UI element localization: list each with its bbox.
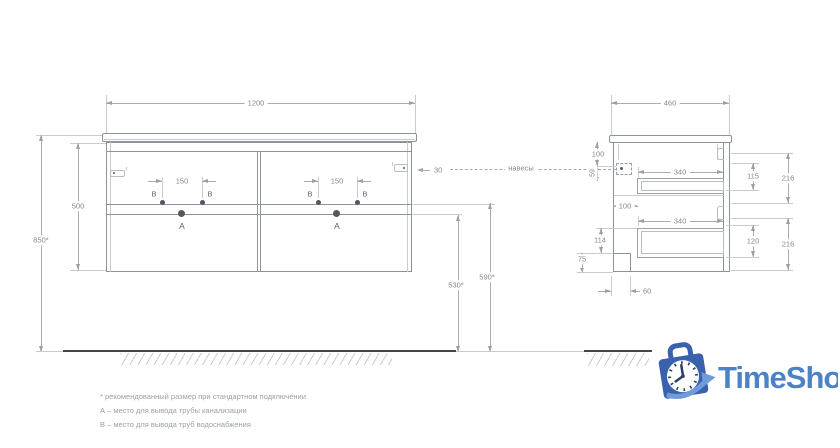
floor-line-thin: [456, 351, 584, 352]
arrow-icon: [409, 101, 415, 105]
arrow-icon: [456, 215, 460, 221]
drawer-box-top-inner: [641, 181, 724, 191]
drain-point: [333, 210, 340, 217]
drawer-box-bottom-inner: [641, 231, 724, 254]
extension-line: [731, 203, 793, 204]
dim-label-supply-span: 150: [173, 176, 192, 186]
dim-line-edge-offset: [421, 170, 430, 171]
dim-label-depth: 460: [661, 98, 680, 108]
extension-line: [731, 270, 793, 271]
supply-point: [316, 200, 321, 205]
arrow-icon: [717, 219, 723, 223]
footnote-b: В – место для вывода труб водоснабжения: [100, 418, 306, 432]
drawer-divider-line: [106, 214, 412, 215]
arrow-icon: [156, 179, 162, 183]
timeshop-logo: TimeShop: [648, 336, 838, 400]
point-label-a: A: [334, 222, 340, 231]
dim-label-drawer-depth: 340: [671, 216, 690, 226]
arrow-icon: [751, 184, 755, 190]
arrow-icon: [312, 179, 318, 183]
dim-label-notch-height: 75: [575, 254, 589, 264]
point-label-b: B: [307, 190, 312, 198]
extension-line: [415, 95, 416, 135]
arrow-icon: [786, 197, 790, 203]
hanger-rail-line: [618, 144, 619, 160]
bracket-hook-line: [126, 167, 127, 171]
arrow-icon: [599, 228, 603, 234]
arrow-icon: [76, 264, 80, 270]
countertop-front: [102, 133, 417, 142]
arrow-icon: [76, 143, 80, 149]
center-divider-line: [257, 151, 258, 272]
arrow-icon: [357, 179, 363, 183]
arrow-icon: [605, 289, 611, 293]
arrow-icon: [786, 264, 790, 270]
dim-label-edge-offset: 30: [432, 165, 444, 175]
extension-line: [162, 177, 163, 198]
footnotes: * рекомендованный размер при стандартном…: [100, 390, 306, 432]
dim-label-hanger-gap: 59: [589, 166, 598, 180]
bracket-dot: [403, 167, 405, 169]
arrow-icon: [39, 135, 43, 141]
arrow-icon: [751, 225, 755, 231]
shelf-line: [614, 195, 724, 196]
arrow-icon: [786, 218, 790, 224]
dim-label-height: 500: [69, 201, 88, 211]
arrow-icon: [751, 163, 755, 169]
dim-label-drawer-inner-bottom: 120: [744, 236, 763, 246]
top-rail-line: [106, 151, 412, 152]
logo-text: TimeShop: [718, 360, 838, 395]
dim-label-front-height-top: 216: [779, 173, 798, 183]
point-label-a: A: [179, 222, 185, 231]
drawer-divider-line: [106, 204, 412, 205]
technical-drawing-canvas: 1200 500 850* 590* 530* 150 150 30 B B B…: [0, 0, 840, 448]
supply-point: [200, 200, 205, 205]
supply-point: [355, 200, 360, 205]
bracket-icon: [394, 164, 408, 172]
arrow-icon: [611, 101, 617, 105]
center-divider-line: [260, 151, 261, 272]
hanger-dot: [620, 167, 623, 170]
notch-line: [613, 253, 630, 254]
dim-label-supply-span: 150: [328, 176, 347, 186]
cabinet-body-front: [106, 142, 412, 272]
extension-line: [731, 218, 793, 219]
bracket-hook-line: [392, 162, 393, 166]
side-panel-line: [407, 142, 408, 272]
extension-line: [726, 190, 759, 191]
dim-line-notch-depth: [636, 291, 640, 292]
dim-label-bottom-offset: 114: [591, 235, 609, 245]
arrow-icon: [751, 251, 755, 257]
shopping-bag-clock-icon: [656, 341, 717, 400]
floor-hatch: [120, 353, 392, 365]
arrow-icon: [202, 179, 208, 183]
arrow-icon: [723, 101, 729, 105]
point-label-b: B: [151, 190, 156, 198]
extension-line: [70, 270, 106, 271]
arrow-icon: [488, 203, 492, 209]
floor-hatch: [587, 353, 649, 366]
dim-label-back-clearance: 100: [616, 201, 635, 211]
arrow-icon: [786, 153, 790, 159]
floor-line: [584, 350, 652, 352]
bracket-dot: [113, 172, 115, 174]
point-label-b: B: [362, 190, 367, 198]
extension-line: [577, 272, 613, 273]
countertop-edge-line: [104, 139, 415, 140]
extension-line: [611, 276, 612, 296]
dim-label-drawer-inner-top: 115: [744, 171, 762, 181]
dim-label-drawer-depth: 340: [671, 167, 690, 177]
drain-point: [178, 210, 185, 217]
footnote-a: А – место для вывода трубы канализации: [100, 404, 306, 418]
extension-line: [36, 135, 102, 136]
dim-label-mount-height: 850*: [30, 235, 51, 245]
arrow-icon: [595, 142, 599, 148]
extension-line: [630, 276, 631, 296]
arrow-icon: [106, 101, 112, 105]
arrow-icon: [638, 170, 644, 174]
dim-label-front-height-bottom: 216: [779, 239, 798, 249]
notch-line: [630, 253, 631, 272]
point-label-b: B: [207, 190, 212, 198]
extension-line: [731, 153, 793, 154]
extension-line: [731, 163, 759, 164]
extension-line: [412, 214, 462, 215]
hanger-bracket: [616, 163, 632, 175]
dim-label-supply-height: 590*: [476, 272, 497, 282]
extension-line: [729, 95, 730, 135]
extension-line: [412, 204, 495, 205]
dim-label-width: 1200: [245, 98, 268, 108]
side-panel-line: [110, 142, 111, 272]
dim-label-drain-height: 530*: [445, 280, 466, 290]
arrow-icon: [638, 219, 644, 223]
dim-label-hanger-top: 100: [589, 149, 608, 159]
footnote-asterisk: * рекомендованный размер при стандартном…: [100, 390, 306, 404]
handle-notch: [717, 148, 724, 160]
extension-line: [318, 177, 319, 198]
floor-line: [63, 350, 456, 352]
dim-label-notch-depth: 60: [641, 286, 653, 296]
hangers-label: навесы: [505, 163, 537, 173]
supply-point: [160, 200, 165, 205]
arrow-icon: [717, 170, 723, 174]
extension-line: [726, 257, 759, 258]
